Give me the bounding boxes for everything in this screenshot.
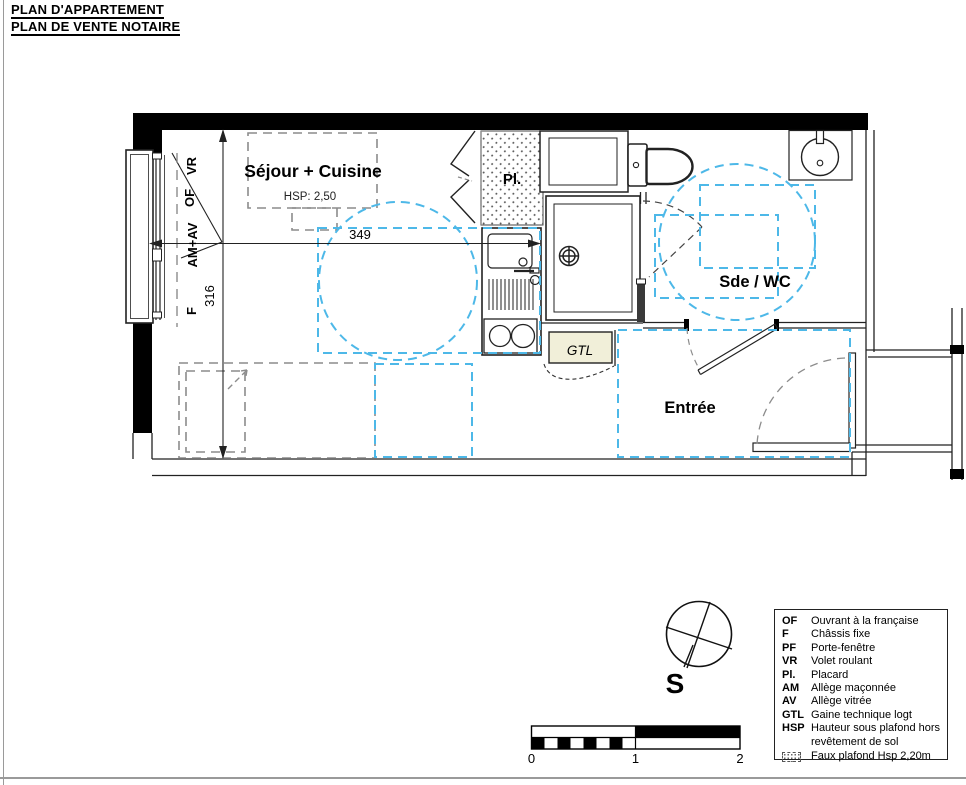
legend-abbr: OF (782, 615, 811, 628)
legend-item-of: OF Ouvrant à la française (782, 615, 943, 628)
dimension-depth-316 (219, 129, 227, 459)
legend-label: Ouvrant à la française (811, 615, 943, 628)
cabinet-column (540, 131, 628, 192)
wall-ticks (684, 319, 964, 479)
compass-icon (666, 602, 732, 669)
page-border-left (3, 0, 4, 785)
legend-item-pl: Pl. Placard (782, 669, 943, 682)
legend-item-gtl: GTL Gaine technique logt (782, 709, 943, 722)
page-title-line2: PLAN DE VENTE NOTAIRE (11, 20, 180, 36)
compass-south-label: S (666, 668, 685, 699)
floor-plan-page: { "colors": { "accessibility_blue": "#4d… (0, 0, 966, 785)
left-window (126, 150, 165, 323)
legend-item-am: AM Allège maçonnée (782, 682, 943, 695)
window-label-f: F (184, 307, 199, 315)
toilet (628, 144, 693, 186)
legend-abbr: F (782, 628, 811, 641)
sdewc-pivot-door (637, 201, 703, 322)
legend-abbr: VR (782, 655, 811, 668)
window-label-of: OF (182, 189, 197, 207)
legend-label: Volet roulant (811, 655, 943, 668)
legend-item-pf: PF Porte-fenêtre (782, 642, 943, 655)
legend-item-vr: VR Volet roulant (782, 655, 943, 668)
scale-bar (532, 726, 741, 749)
gtl-dashed-arc (544, 364, 614, 379)
faux-plafond-zones (248, 133, 377, 230)
room-label-hsp: HSP: 2,50 (284, 191, 336, 203)
accessibility-rect-bedside (375, 364, 472, 457)
legend-item-f: F Châssis fixe (782, 628, 943, 641)
entrance-door (753, 353, 856, 452)
accessibility-circle-sejour (319, 202, 477, 360)
sdewc-entree-door (687, 324, 778, 375)
legend-abbr: AM (782, 682, 811, 695)
faux-plafond-swatch-icon (782, 752, 801, 762)
legend-label: Châssis fixe (811, 628, 943, 641)
window-label-am-av: AM+AV (185, 222, 200, 267)
dimension-width-label: 349 (349, 227, 371, 242)
legend-label: Porte-fenêtre (811, 642, 943, 655)
washbasin (789, 131, 852, 181)
kitchen-stove (484, 319, 537, 353)
accessibility-rect-sde-2 (700, 185, 815, 268)
scale-tick-1: 1 (632, 751, 639, 766)
room-label-gtl: GTL (567, 343, 593, 358)
shower-drain-icon (560, 247, 579, 266)
scale-tick-2: 2 (736, 751, 743, 766)
room-label-sejour: Séjour + Cuisine (244, 161, 382, 181)
legend-abbr: HSP (782, 722, 811, 735)
legend-label: Faux plafond Hsp 2,20m (811, 750, 943, 763)
scale-tick-0: 0 (528, 751, 535, 766)
legend-abbr: AV (782, 695, 811, 708)
legend-abbr: PF (782, 642, 811, 655)
room-label-sde-wc: Sde / WC (719, 273, 791, 291)
page-title-line1: PLAN D'APPARTEMENT (11, 3, 164, 19)
room-label-placard: Pl. (503, 171, 521, 188)
legend-label: Allège vitrée (811, 695, 943, 708)
legend-abbr: GTL (782, 709, 811, 722)
legend-item-faux-plafond: Faux plafond Hsp 2,20m (782, 750, 943, 763)
bed-dashed-outline (179, 363, 375, 458)
legend-label: Allège maçonnée (811, 682, 943, 695)
dimension-depth-label: 316 (202, 285, 217, 307)
legend-abbr: Pl. (782, 669, 811, 682)
legend-label: Hauteur sous plafond hors revêtement de … (811, 722, 943, 749)
legend-item-hsp: HSP Hauteur sous plafond hors revêtement… (782, 722, 943, 749)
accessibility-circle-sde (659, 164, 815, 320)
legend-box: OF Ouvrant à la française F Châssis fixe… (774, 609, 948, 760)
bed-arrow (228, 370, 247, 389)
legend-label: Gaine technique logt (811, 709, 943, 722)
placard-folding-door (451, 131, 475, 223)
window-label-vr: VR (184, 156, 199, 175)
page-border-bottom (0, 777, 966, 779)
room-label-entree: Entrée (664, 399, 715, 417)
legend-label: Placard (811, 669, 943, 682)
legend-item-av: AV Allège vitrée (782, 695, 943, 708)
